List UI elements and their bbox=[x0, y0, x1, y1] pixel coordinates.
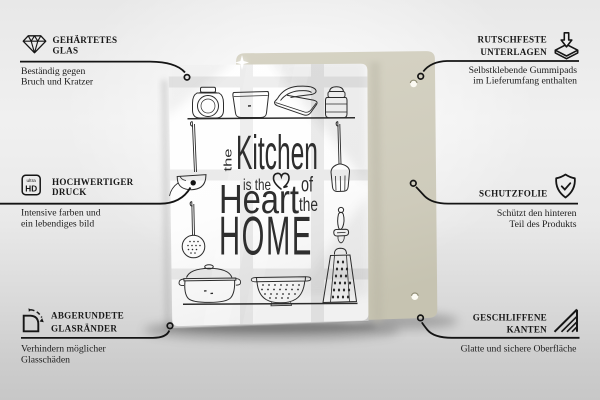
svg-text:Intensive farben und: Intensive farben und bbox=[21, 208, 101, 219]
svg-text:ultra: ultra bbox=[27, 178, 37, 184]
svg-text:HOCHWERTIGER: HOCHWERTIGER bbox=[52, 177, 134, 187]
svg-text:Beständig gegen: Beständig gegen bbox=[21, 66, 85, 77]
svg-text:Glasschäden: Glasschäden bbox=[21, 355, 70, 366]
svg-text:Verhindern möglicher: Verhindern möglicher bbox=[21, 344, 107, 355]
svg-text:Glatte und sichere Oberfläche: Glatte und sichere Oberfläche bbox=[461, 344, 577, 355]
svg-text:UNTERLAGEN: UNTERLAGEN bbox=[480, 47, 547, 57]
svg-text:GLASRÄNDER: GLASRÄNDER bbox=[51, 324, 117, 334]
svg-text:GEHÄRTETES: GEHÄRTETES bbox=[53, 35, 118, 45]
svg-text:Teil des Produkts: Teil des Produkts bbox=[509, 219, 576, 230]
svg-text:Schützt den hinteren: Schützt den hinteren bbox=[497, 208, 577, 219]
svg-text:Selbstklebende Gummipads: Selbstklebende Gummipads bbox=[469, 65, 578, 76]
svg-text:Bruch und Kratzer: Bruch und Kratzer bbox=[21, 77, 94, 88]
svg-text:KANTEN: KANTEN bbox=[507, 325, 548, 335]
svg-text:ABGERUNDETE: ABGERUNDETE bbox=[51, 311, 124, 321]
svg-text:HOME: HOME bbox=[219, 206, 313, 267]
svg-text:GLAS: GLAS bbox=[53, 46, 79, 56]
svg-text:ein lebendiges bild: ein lebendiges bild bbox=[21, 219, 94, 230]
svg-text:HD: HD bbox=[25, 184, 37, 193]
svg-text:the: the bbox=[221, 148, 234, 171]
svg-text:DRUCK: DRUCK bbox=[52, 187, 87, 197]
svg-text:im Lieferumfang enthalten: im Lieferumfang enthalten bbox=[473, 76, 577, 87]
svg-text:RUTSCHFESTE: RUTSCHFESTE bbox=[478, 35, 547, 45]
svg-text:SCHUTZFOLIE: SCHUTZFOLIE bbox=[479, 189, 547, 199]
svg-text:GESCHLIFFENE: GESCHLIFFENE bbox=[473, 313, 547, 323]
svg-text:of: of bbox=[301, 173, 314, 196]
